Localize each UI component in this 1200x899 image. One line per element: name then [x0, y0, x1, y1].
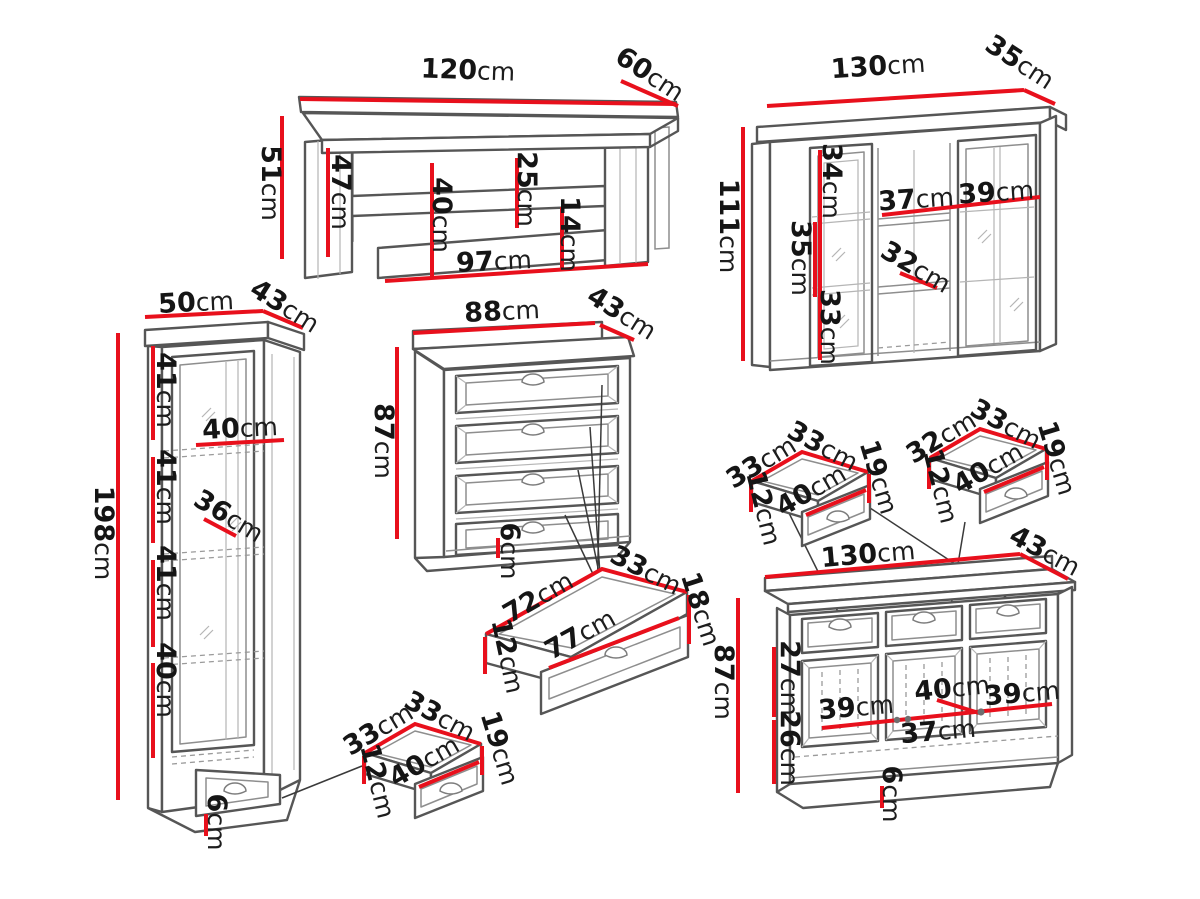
dim-sideboard-height: 87cm — [709, 644, 740, 720]
dim-wall-cabinet-bottom-section: 33cm — [815, 289, 846, 365]
dim-sideboard-upper-section: 27cm — [775, 640, 806, 716]
dim-tall-cabinet-section4: 40cm — [151, 642, 182, 718]
dim-tall-cabinet-height: 198cm — [89, 486, 120, 580]
dim-coffee-table-inner-height: 47cm — [326, 154, 357, 230]
furniture-dimension-diagram: 120cm 60cm 51cm 47cm 40cm 25cm 14cm 97cm — [0, 0, 1200, 899]
dim-wall-cabinet-top-section: 34cm — [817, 143, 848, 219]
dim-coffee-table-width: 120cm — [420, 53, 516, 87]
dim-tall-cabinet-section1: 41cm — [151, 352, 182, 428]
dim-coffee-table-height: 51cm — [256, 145, 287, 221]
dim-sideboard-plinth: 6cm — [877, 766, 908, 823]
dim-coffee-table-inner-width: 97cm — [455, 244, 532, 279]
dim-wall-cabinet-middle-section: 35cm — [786, 220, 817, 296]
dim-chest-width: 88cm — [463, 294, 540, 329]
dim-chest-height: 87cm — [369, 403, 400, 479]
dim-coffee-table-shelf-clearance: 40cm — [427, 177, 458, 253]
dim-tall-cabinet-width: 50cm — [157, 285, 234, 320]
dim-tall-cabinet-section2: 41cm — [151, 449, 182, 525]
dim-chest-plinth: 6cm — [495, 523, 526, 580]
dim-coffee-table-shelf-gap: 14cm — [555, 196, 586, 272]
dim-tall-cabinet-plinth: 6cm — [202, 794, 233, 851]
dim-coffee-table-top-to-shelf: 25cm — [512, 151, 543, 227]
dim-tall-cabinet-inner-width: 40cm — [201, 411, 278, 446]
diagram-canvas: 120cm 60cm 51cm 47cm 40cm 25cm 14cm 97cm — [0, 0, 1200, 899]
dim-tall-cabinet-section3: 41cm — [151, 545, 182, 621]
dim-sideboard-lower-section: 26cm — [775, 710, 806, 786]
dim-wall-cabinet-height: 111cm — [714, 179, 745, 273]
